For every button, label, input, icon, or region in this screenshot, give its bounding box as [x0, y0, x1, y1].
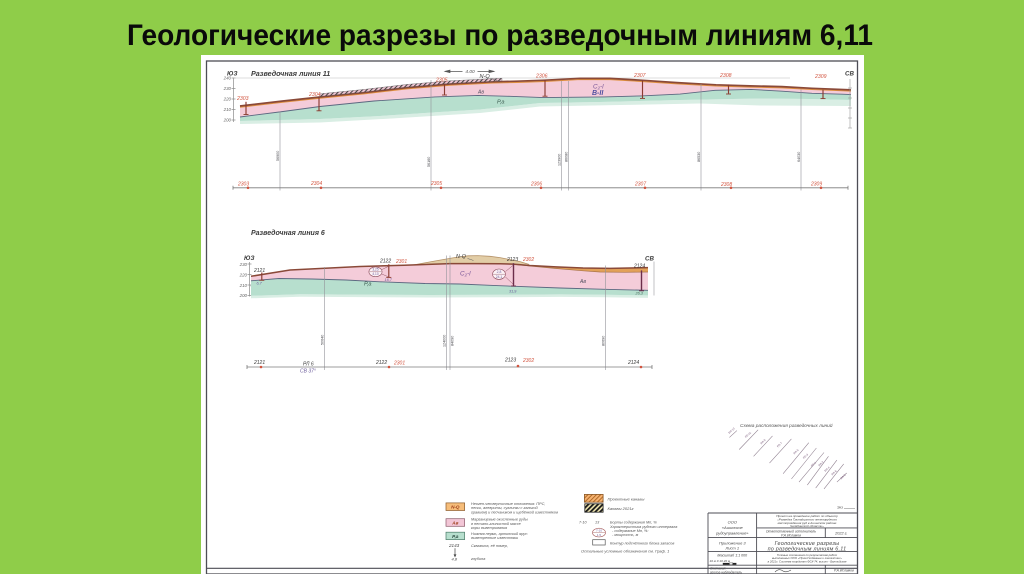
svg-text:26,3: 26,3: [635, 291, 644, 295]
svg-text:СВ: СВ: [645, 256, 654, 263]
svg-text:31,9: 31,9: [509, 290, 517, 294]
svg-text:по разведочным линиям 6,11: по разведочным линиям 6,11: [768, 547, 847, 553]
svg-text:64030: 64030: [797, 152, 801, 162]
svg-text:N-Q: N-Q: [451, 505, 460, 510]
svg-text:7-10: 7-10: [579, 520, 587, 524]
svg-text:220: 220: [239, 272, 248, 277]
svg-text:СВ 37°: СВ 37°: [300, 368, 316, 374]
svg-text:Масштаб 1:1 000: Масштаб 1:1 000: [717, 553, 747, 557]
svg-text:2308: 2308: [720, 182, 732, 188]
svg-text:рудоуправление»: рудоуправление»: [715, 531, 749, 536]
svg-text:124000: 124000: [443, 335, 447, 347]
svg-text:С₂-l: С₂-l: [460, 271, 471, 278]
svg-text:Канавы 2021г: Канавы 2021г: [608, 506, 634, 511]
svg-text:210: 210: [239, 283, 248, 288]
svg-text:Лист 1: Лист 1: [724, 546, 739, 551]
svg-text:2309: 2309: [810, 181, 822, 187]
svg-text:в 2021г. Система координат ФСК: в 2021г. Система координат ФСК-74, высот…: [768, 559, 847, 563]
svg-text:Р,а: Р,а: [452, 534, 459, 539]
svg-text:2124: 2124: [633, 264, 645, 270]
svg-text:2303: 2303: [237, 182, 249, 188]
svg-text:коры выветривания: коры выветривания: [471, 526, 507, 530]
svg-text:2305: 2305: [435, 78, 448, 84]
svg-text:2,8: 2,8: [497, 270, 502, 274]
svg-text:2301: 2301: [395, 259, 407, 265]
svg-text:2302: 2302: [522, 358, 534, 364]
svg-text:«Ашинское: «Ашинское: [722, 525, 744, 530]
svg-text:Р.А.Исламов: Р.А.Исламов: [781, 534, 801, 538]
svg-text:Экз: Экз: [837, 506, 843, 510]
svg-text:ЮЗ: ЮЗ: [244, 255, 254, 262]
svg-text:2307: 2307: [634, 181, 646, 187]
svg-text:2122: 2122: [379, 259, 391, 265]
svg-text:123900: 123900: [558, 154, 562, 166]
svg-text:50640: 50640: [321, 335, 325, 345]
svg-text:56900: 56900: [276, 151, 280, 161]
svg-text:Скважина, её номер,: Скважина, её номер,: [471, 544, 508, 548]
svg-text:Ав: Ав: [451, 520, 458, 525]
svg-text:86530: 86530: [697, 152, 701, 162]
svg-text:240: 240: [223, 76, 232, 81]
svg-text:Челябинской области»: Челябинской области»: [790, 524, 824, 528]
svg-text:РЛ 6: РЛ 6: [303, 361, 314, 367]
svg-text:Контур подсчётного блока запас: Контур подсчётного блока запасов: [610, 541, 674, 545]
svg-text:2124: 2124: [627, 360, 639, 366]
svg-text:220: 220: [223, 97, 232, 102]
svg-text:В-II: В-II: [592, 90, 604, 97]
svg-text:Р,а: Р,а: [364, 281, 372, 287]
svg-text:2308: 2308: [719, 73, 732, 79]
svg-text:2143: 2143: [448, 543, 460, 548]
svg-text:N-Q: N-Q: [456, 254, 467, 260]
svg-text:выветренные известняки: выветренные известняки: [471, 536, 519, 540]
svg-text:Р.А.Исламов: Р.А.Исламов: [834, 569, 854, 573]
svg-text:210: 210: [223, 107, 232, 112]
svg-text:3,25: 3,25: [372, 268, 378, 272]
svg-text:2303: 2303: [236, 96, 249, 102]
svg-text:2022 г.: 2022 г.: [834, 532, 847, 536]
svg-text:Остальные условные обозначения: Остальные условные обозначения см. Граф.…: [581, 548, 669, 553]
svg-text:ООО: ООО: [728, 520, 737, 525]
svg-text:6,7: 6,7: [257, 282, 263, 286]
svg-text:84090: 84090: [451, 336, 455, 346]
svg-text:56160: 56160: [427, 157, 431, 167]
svg-text:Ав: Ав: [579, 279, 586, 285]
svg-text:N-Q: N-Q: [480, 74, 491, 80]
svg-text:2304: 2304: [308, 92, 321, 98]
svg-text:200: 200: [223, 118, 232, 123]
svg-text:Проектные канавы: Проектные канавы: [608, 496, 645, 501]
svg-text:2307: 2307: [633, 73, 647, 79]
svg-text:2306: 2306: [530, 182, 542, 188]
svg-text:7-10: 7-10: [596, 529, 602, 533]
svg-text:2302: 2302: [522, 257, 534, 263]
svg-text:86080: 86080: [565, 152, 569, 162]
svg-text:2301: 2301: [393, 361, 405, 367]
svg-text:230: 230: [223, 86, 232, 91]
svg-text:2305: 2305: [430, 181, 442, 187]
svg-text:геолог-наблюдатель: геолог-наблюдатель: [710, 570, 742, 574]
svg-text:2306: 2306: [535, 74, 548, 80]
svg-text:Геологические разрезы по разв: Геологические разрезы по разведочным лин…: [127, 19, 873, 52]
svg-text:4,10: 4,10: [372, 272, 378, 276]
svg-text:4,8: 4,8: [452, 556, 458, 561]
svg-text:2123: 2123: [504, 357, 516, 363]
svg-text:глубина: глубина: [471, 557, 485, 561]
svg-text:80690: 80690: [602, 336, 606, 346]
svg-text:2123: 2123: [506, 257, 518, 263]
svg-text:2122: 2122: [375, 360, 387, 366]
svg-text:Ав: Ав: [477, 90, 484, 96]
svg-text:1,5: 1,5: [597, 533, 602, 537]
svg-text:Разведочная линия 6: Разведочная линия 6: [251, 229, 325, 237]
svg-text:Схема расположения разведочных: Схема расположения разведочных линий: [740, 423, 833, 428]
svg-text:10 м 0 10 20 м: 10 м 0 10 20 м: [710, 559, 731, 563]
svg-text:200: 200: [239, 293, 248, 298]
svg-text:СВ: СВ: [845, 71, 854, 78]
svg-text:2309: 2309: [814, 74, 827, 80]
svg-text:Разведочная линия 11: Разведочная линия 11: [251, 69, 330, 78]
svg-text:24,1: 24,1: [496, 275, 503, 279]
svg-text:- мощность, м: - мощность, м: [612, 533, 639, 537]
svg-text:2121: 2121: [253, 360, 265, 366]
svg-text:16,7: 16,7: [385, 278, 393, 282]
svg-text:230: 230: [239, 262, 248, 267]
svg-text:4.00: 4.00: [465, 69, 475, 75]
svg-text:2121: 2121: [253, 268, 265, 274]
svg-text:Р,а: Р,а: [497, 100, 505, 106]
svg-text:2304: 2304: [310, 181, 322, 187]
svg-text:гравием) и песчаником и щебёнк: гравием) и песчаником и щебёнкой известн…: [471, 510, 558, 514]
svg-text:Борты содержания Мп, %: Борты содержания Мп, %: [610, 520, 657, 524]
